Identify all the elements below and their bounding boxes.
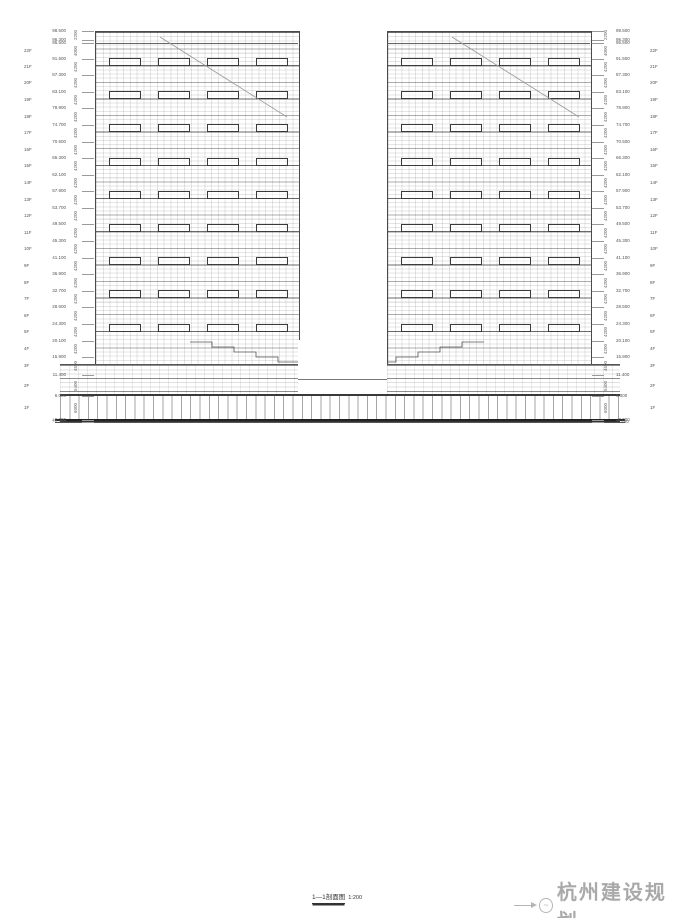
dimension-label: 4200 bbox=[604, 228, 609, 238]
level-label: 45.300 bbox=[616, 239, 642, 244]
level-tick bbox=[592, 422, 604, 423]
level-label: 96.300 bbox=[40, 37, 66, 42]
window-box bbox=[401, 191, 433, 199]
base-colonnade bbox=[60, 394, 620, 422]
section-drawing: 大堂(门厅)配套—展示用房配套—办公用房配套—生产用房检验检测中心(配套用房)检… bbox=[0, 450, 674, 890]
window-box bbox=[548, 290, 580, 298]
floor-label: 13F bbox=[24, 197, 40, 202]
level-tick bbox=[592, 92, 604, 93]
window-box bbox=[401, 324, 433, 332]
floor-label: 15F bbox=[24, 164, 40, 169]
dimension-label: 4200 bbox=[74, 145, 79, 155]
caption-scale: 1:200 bbox=[348, 895, 362, 901]
window-box bbox=[401, 257, 433, 265]
window-box bbox=[548, 58, 580, 66]
floor-label: 10F bbox=[650, 247, 666, 252]
level-tick bbox=[592, 191, 604, 192]
dimension-label: 4000 bbox=[604, 46, 609, 56]
window-box bbox=[401, 124, 433, 132]
level-tick bbox=[592, 357, 604, 358]
window-box bbox=[109, 124, 141, 132]
level-label: 20.100 bbox=[616, 338, 642, 343]
window-box bbox=[499, 158, 531, 166]
window-box bbox=[207, 91, 239, 99]
floor-label: 17F bbox=[24, 131, 40, 136]
dimension-label: 2200 bbox=[74, 30, 79, 40]
floor-label: 21F bbox=[24, 65, 40, 70]
window-box bbox=[158, 158, 190, 166]
level-label: 28.500 bbox=[616, 305, 642, 310]
window-box bbox=[158, 224, 190, 232]
floor-label: 22F bbox=[650, 48, 666, 53]
level-tick bbox=[82, 241, 94, 242]
dimension-label: 4200 bbox=[74, 78, 79, 88]
dimension-label: 4200 bbox=[604, 278, 609, 288]
dimension-label: 6000 bbox=[604, 403, 609, 413]
level-tick bbox=[592, 158, 604, 159]
level-tick bbox=[82, 341, 94, 342]
level-tick bbox=[592, 59, 604, 60]
floor-label: 9F bbox=[24, 264, 40, 269]
dimension-label: 4200 bbox=[74, 261, 79, 271]
dimension-label: 4200 bbox=[74, 195, 79, 205]
level-tick bbox=[592, 241, 604, 242]
window-box bbox=[548, 158, 580, 166]
level-label: 15.900 bbox=[40, 355, 66, 360]
dimension-label: 4200 bbox=[74, 278, 79, 288]
floor-label: 9F bbox=[650, 264, 666, 269]
level-tick bbox=[82, 422, 94, 423]
window-box bbox=[256, 158, 288, 166]
floor-label: 18F bbox=[24, 114, 40, 119]
level-tick bbox=[592, 324, 604, 325]
floor-label: 12F bbox=[24, 214, 40, 219]
floor-label: 1F bbox=[650, 406, 666, 411]
floor-label: 20F bbox=[24, 81, 40, 86]
podium-band-left bbox=[60, 364, 298, 395]
floor-label: 14F bbox=[24, 181, 40, 186]
level-tick bbox=[82, 43, 94, 44]
window-box bbox=[207, 191, 239, 199]
level-tick bbox=[82, 31, 94, 32]
dimension-label: 4200 bbox=[74, 311, 79, 321]
dimension-label: 4500 bbox=[74, 361, 79, 371]
window-box bbox=[158, 257, 190, 265]
level-label: 96.300 bbox=[616, 37, 642, 42]
level-tick bbox=[592, 208, 604, 209]
level-tick bbox=[592, 420, 604, 421]
level-label: 53.700 bbox=[616, 206, 642, 211]
level-label: 74.700 bbox=[40, 123, 66, 128]
window-box bbox=[401, 91, 433, 99]
level-tick bbox=[82, 291, 94, 292]
window-box bbox=[548, 257, 580, 265]
level-tick bbox=[592, 175, 604, 176]
level-tick bbox=[82, 175, 94, 176]
level-label: 41.100 bbox=[616, 255, 642, 260]
dimension-label: 4200 bbox=[604, 128, 609, 138]
floor-label: 1F bbox=[24, 406, 40, 411]
level-label: 70.500 bbox=[616, 139, 642, 144]
arrow-line-icon bbox=[514, 905, 535, 906]
window-box bbox=[499, 58, 531, 66]
level-tick bbox=[592, 291, 604, 292]
level-label: 53.700 bbox=[40, 206, 66, 211]
level-label: 36.900 bbox=[40, 272, 66, 277]
window-box bbox=[256, 324, 288, 332]
level-label: 66.300 bbox=[40, 156, 66, 161]
dimension-label: 4200 bbox=[74, 62, 79, 72]
window-box bbox=[450, 124, 482, 132]
window-box bbox=[499, 91, 531, 99]
window-box bbox=[548, 191, 580, 199]
level-label: 91.500 bbox=[616, 56, 642, 61]
window-box bbox=[256, 191, 288, 199]
level-label: 87.300 bbox=[40, 73, 66, 78]
level-tick bbox=[592, 258, 604, 259]
dimension-label: 4200 bbox=[74, 211, 79, 221]
level-label: 66.300 bbox=[616, 156, 642, 161]
floor-label: 21F bbox=[650, 65, 666, 70]
level-tick bbox=[592, 375, 604, 376]
tower-facade bbox=[387, 31, 592, 398]
level-tick bbox=[82, 92, 94, 93]
floor-label: 8F bbox=[650, 280, 666, 285]
window-box bbox=[256, 91, 288, 99]
dimension-label: 4200 bbox=[74, 294, 79, 304]
window-box bbox=[109, 224, 141, 232]
window-box bbox=[450, 191, 482, 199]
level-label: 57.900 bbox=[616, 189, 642, 194]
level-label: 11.400 bbox=[40, 373, 66, 378]
level-label: 57.900 bbox=[40, 189, 66, 194]
window-box bbox=[109, 257, 141, 265]
level-tick bbox=[82, 108, 94, 109]
level-tick bbox=[592, 75, 604, 76]
level-label: 70.500 bbox=[40, 139, 66, 144]
window-box bbox=[548, 224, 580, 232]
window-box bbox=[256, 224, 288, 232]
window-box bbox=[450, 290, 482, 298]
window-box bbox=[450, 324, 482, 332]
floor-label: 10F bbox=[24, 247, 40, 252]
dimension-label: 4200 bbox=[74, 344, 79, 354]
dimension-label: 4200 bbox=[74, 244, 79, 254]
level-tick bbox=[82, 224, 94, 225]
level-label: 41.100 bbox=[40, 255, 66, 260]
window-box bbox=[207, 324, 239, 332]
dimension-label: 4200 bbox=[604, 161, 609, 171]
window-box bbox=[109, 290, 141, 298]
level-label: ±0.000 bbox=[40, 418, 66, 423]
floor-label: 16F bbox=[650, 148, 666, 153]
floor-label: 16F bbox=[24, 148, 40, 153]
level-tick bbox=[82, 142, 94, 143]
window-box bbox=[256, 58, 288, 66]
floor-label: 19F bbox=[650, 98, 666, 103]
level-tick bbox=[592, 142, 604, 143]
dimension-label: 4200 bbox=[604, 344, 609, 354]
window-box bbox=[499, 191, 531, 199]
level-label: 45.300 bbox=[40, 239, 66, 244]
level-label: 98.500 bbox=[40, 29, 66, 34]
window-box bbox=[207, 158, 239, 166]
level-label: 78.900 bbox=[616, 106, 642, 111]
watermark: ~ 杭州建设规划 bbox=[514, 876, 674, 918]
window-box bbox=[499, 324, 531, 332]
window-box bbox=[207, 290, 239, 298]
window-box bbox=[401, 224, 433, 232]
window-box bbox=[401, 58, 433, 66]
level-tick bbox=[82, 420, 94, 421]
floor-label: 6F bbox=[650, 313, 666, 318]
level-label: 78.900 bbox=[40, 106, 66, 111]
level-label: 49.500 bbox=[40, 222, 66, 227]
dimension-label: 4200 bbox=[604, 145, 609, 155]
window-box bbox=[158, 58, 190, 66]
dimension-label: 4200 bbox=[74, 161, 79, 171]
window-box bbox=[499, 290, 531, 298]
dimension-label: 2200 bbox=[604, 30, 609, 40]
ground-line-2 bbox=[55, 422, 625, 423]
floor-label: 20F bbox=[650, 81, 666, 86]
window-box bbox=[499, 224, 531, 232]
dimension-label: 5400 bbox=[74, 381, 79, 391]
level-label: 62.100 bbox=[616, 172, 642, 177]
floor-label: 4F bbox=[650, 347, 666, 352]
level-label: 24.300 bbox=[616, 322, 642, 327]
window-box bbox=[450, 58, 482, 66]
level-label: 83.100 bbox=[40, 90, 66, 95]
level-tick bbox=[592, 224, 604, 225]
level-label: 6.000 bbox=[616, 394, 642, 399]
floor-label: 17F bbox=[650, 131, 666, 136]
window-box bbox=[158, 290, 190, 298]
level-tick bbox=[82, 208, 94, 209]
window-box bbox=[401, 290, 433, 298]
level-tick bbox=[592, 341, 604, 342]
window-box bbox=[548, 124, 580, 132]
section-overlay-lines bbox=[0, 450, 674, 918]
level-tick bbox=[592, 396, 604, 397]
floor-label: 4F bbox=[24, 347, 40, 352]
dimension-label: 4000 bbox=[74, 46, 79, 56]
level-tick bbox=[82, 274, 94, 275]
dimension-label: 4200 bbox=[604, 294, 609, 304]
dimension-label: 4200 bbox=[74, 228, 79, 238]
level-label: 32.700 bbox=[616, 289, 642, 294]
window-box bbox=[450, 91, 482, 99]
level-tick bbox=[592, 125, 604, 126]
ground-line bbox=[55, 419, 625, 421]
window-box bbox=[109, 91, 141, 99]
floor-label: 19F bbox=[24, 98, 40, 103]
floor-label: 22F bbox=[24, 48, 40, 53]
dimension-label: 6000 bbox=[74, 403, 79, 413]
window-box bbox=[548, 324, 580, 332]
level-label: 62.100 bbox=[40, 172, 66, 177]
section-caption: 1—1剖面图1:200 bbox=[312, 891, 362, 901]
floor-label: 11F bbox=[24, 231, 40, 236]
level-tick bbox=[592, 43, 604, 44]
circle-logo-icon: ~ bbox=[539, 898, 553, 913]
window-box bbox=[207, 124, 239, 132]
level-label: 20.100 bbox=[40, 338, 66, 343]
floor-label: 8F bbox=[24, 280, 40, 285]
level-tick bbox=[82, 59, 94, 60]
level-label: 87.300 bbox=[616, 73, 642, 78]
dimension-label: 4200 bbox=[604, 211, 609, 221]
floor-label: 11F bbox=[650, 231, 666, 236]
floor-label: 14F bbox=[650, 181, 666, 186]
dimension-label: 4200 bbox=[604, 78, 609, 88]
window-box bbox=[499, 124, 531, 132]
dimension-label: 4200 bbox=[74, 95, 79, 105]
window-box bbox=[207, 58, 239, 66]
floor-label: 6F bbox=[24, 313, 40, 318]
drawing-sheet: -0.450±0.0006.00011.40015.90020.10024.30… bbox=[0, 0, 674, 918]
window-box bbox=[548, 91, 580, 99]
window-box bbox=[207, 257, 239, 265]
dimension-label: 4200 bbox=[604, 178, 609, 188]
window-box bbox=[256, 290, 288, 298]
window-box bbox=[450, 257, 482, 265]
dimension-label: 4200 bbox=[604, 95, 609, 105]
dimension-label: 4200 bbox=[604, 112, 609, 122]
level-label: 98.500 bbox=[616, 29, 642, 34]
window-box bbox=[158, 324, 190, 332]
level-tick bbox=[82, 191, 94, 192]
floor-label: 5F bbox=[24, 330, 40, 335]
level-tick bbox=[592, 274, 604, 275]
dimension-label: 4200 bbox=[604, 195, 609, 205]
entrance-canopy-line bbox=[298, 379, 387, 380]
floor-label: 3F bbox=[650, 364, 666, 369]
dimension-label: 4200 bbox=[604, 311, 609, 321]
dimension-label: 4200 bbox=[604, 261, 609, 271]
window-box bbox=[256, 124, 288, 132]
level-label: 6.000 bbox=[40, 394, 66, 399]
window-box bbox=[109, 191, 141, 199]
dimension-label: 4200 bbox=[74, 128, 79, 138]
level-tick bbox=[82, 258, 94, 259]
window-box bbox=[109, 324, 141, 332]
level-tick bbox=[82, 307, 94, 308]
window-box bbox=[109, 58, 141, 66]
podium-band-right bbox=[387, 364, 620, 395]
dimension-label: 4200 bbox=[74, 178, 79, 188]
caption-title: 1—1剖面图 bbox=[312, 894, 345, 904]
dimension-label: 4200 bbox=[604, 244, 609, 254]
level-tick bbox=[82, 375, 94, 376]
floor-label: 7F bbox=[650, 297, 666, 302]
level-label: 74.700 bbox=[616, 123, 642, 128]
floor-label: 18F bbox=[650, 114, 666, 119]
window-box bbox=[450, 158, 482, 166]
level-tick bbox=[592, 108, 604, 109]
floor-label: 2F bbox=[650, 383, 666, 388]
window-box bbox=[109, 158, 141, 166]
level-tick bbox=[82, 324, 94, 325]
window-box bbox=[499, 257, 531, 265]
level-tick bbox=[82, 125, 94, 126]
dimension-label: 4500 bbox=[604, 361, 609, 371]
level-label: 83.100 bbox=[616, 90, 642, 95]
level-label: 11.400 bbox=[616, 373, 642, 378]
level-tick bbox=[82, 357, 94, 358]
level-label: 24.300 bbox=[40, 322, 66, 327]
floor-label: 12F bbox=[650, 214, 666, 219]
floor-label: 3F bbox=[24, 364, 40, 369]
level-label: 15.900 bbox=[616, 355, 642, 360]
window-box bbox=[158, 124, 190, 132]
dimension-label: 4200 bbox=[74, 327, 79, 337]
dimension-label: 5400 bbox=[604, 381, 609, 391]
level-tick bbox=[82, 75, 94, 76]
floor-label: 7F bbox=[24, 297, 40, 302]
level-label: 91.500 bbox=[40, 56, 66, 61]
elevation-drawing: -0.450±0.0006.00011.40015.90020.10024.30… bbox=[0, 0, 674, 450]
tower-facade bbox=[95, 31, 300, 398]
window-box bbox=[401, 158, 433, 166]
roof-line bbox=[95, 43, 298, 44]
level-label: 36.900 bbox=[616, 272, 642, 277]
window-box bbox=[256, 257, 288, 265]
entrance-gap bbox=[298, 340, 387, 394]
floor-label: 5F bbox=[650, 330, 666, 335]
dimension-label: 4200 bbox=[604, 62, 609, 72]
floor-label: 15F bbox=[650, 164, 666, 169]
window-box bbox=[158, 91, 190, 99]
window-box bbox=[450, 224, 482, 232]
floor-label: 2F bbox=[24, 383, 40, 388]
level-label: 32.700 bbox=[40, 289, 66, 294]
watermark-text: 杭州建设规划 bbox=[557, 876, 674, 918]
level-tick bbox=[592, 307, 604, 308]
level-tick bbox=[82, 396, 94, 397]
dimension-label: 4200 bbox=[604, 327, 609, 337]
level-label: 28.500 bbox=[40, 305, 66, 310]
window-box bbox=[158, 191, 190, 199]
level-label: ±0.000 bbox=[616, 418, 642, 423]
floor-label: 13F bbox=[650, 197, 666, 202]
roof-line bbox=[387, 43, 590, 44]
dimension-label: 4200 bbox=[74, 112, 79, 122]
level-label: 49.500 bbox=[616, 222, 642, 227]
window-box bbox=[207, 224, 239, 232]
level-tick bbox=[82, 158, 94, 159]
level-tick bbox=[82, 40, 94, 41]
